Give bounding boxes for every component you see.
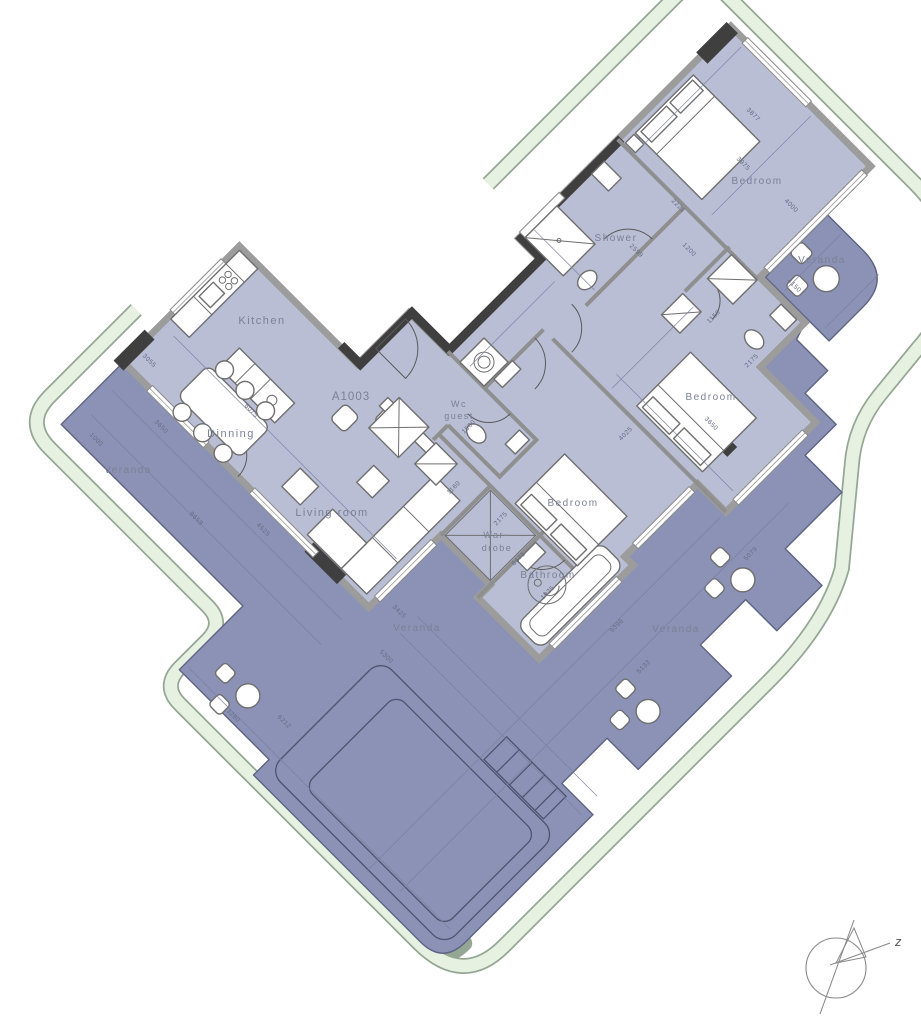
label-wardrobe-line1: War− — [483, 530, 510, 540]
label-living-room: Living room — [295, 507, 368, 519]
label-veranda-bottom-right: Veranda — [652, 624, 700, 635]
label-kitchen: Kitchen — [238, 315, 285, 327]
label-dinning: Dinning — [207, 428, 255, 440]
label-bedroom-right: Bedroom — [685, 392, 736, 403]
label-bedroom-bottom: Bedroom — [547, 498, 598, 509]
plan-rotated-group — [0, 0, 921, 987]
unit-number-label: A1003 — [332, 391, 370, 403]
label-veranda-left: Veranda — [104, 465, 152, 476]
label-wc-line2: guest — [444, 411, 474, 421]
floor-plan-canvas: KitchenDinningLiving roomVerandaVerandaV… — [0, 0, 921, 1024]
label-wc-line1: Wc — [451, 399, 467, 409]
label-bathroom: Bathroom — [520, 570, 575, 581]
label-veranda-top-right: Veranda — [798, 255, 846, 266]
compass-north-label: z — [894, 934, 902, 949]
label-wardrobe-line2: drobe — [482, 543, 513, 553]
label-shower: Shower — [595, 233, 638, 244]
label-veranda-bottom-center: Veranda — [393, 623, 441, 634]
label-bedroom-top: Bedroom — [731, 176, 782, 187]
compass: z — [806, 920, 902, 1014]
floor-plan-page: KitchenDinningLiving roomVerandaVerandaV… — [0, 0, 921, 1024]
